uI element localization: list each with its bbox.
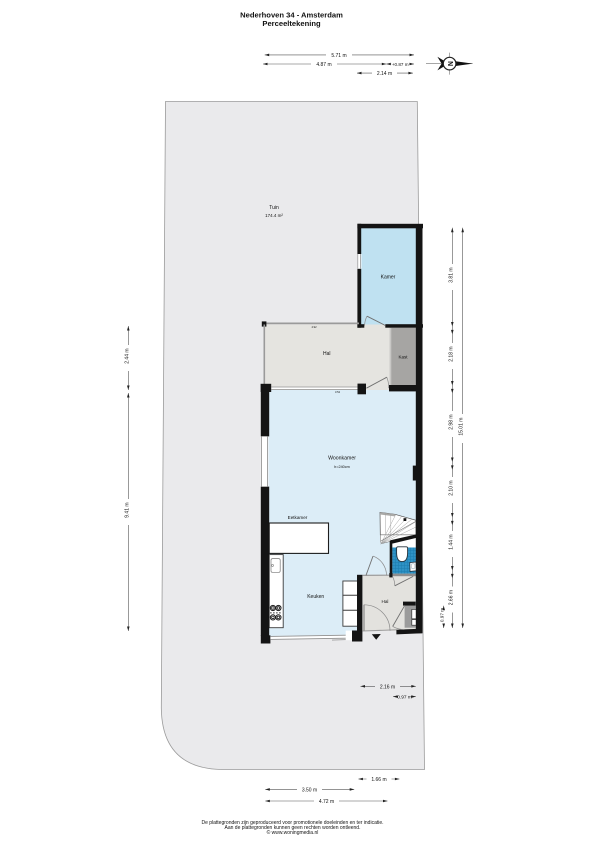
svg-text:9.41 m: 9.41 m (124, 502, 130, 517)
svg-text:Hal: Hal (323, 351, 331, 357)
svg-text:2.14 m: 2.14 m (377, 71, 392, 77)
svg-text:Keuken: Keuken (307, 594, 324, 600)
svg-text:3.50 m: 3.50 m (302, 787, 317, 793)
svg-text:174.4 m²: 174.4 m² (265, 213, 283, 218)
svg-text:3.81 m: 3.81 m (448, 267, 454, 282)
svg-text:Hal: Hal (382, 599, 389, 604)
svg-text:4.72 m: 4.72 m (319, 799, 334, 805)
svg-text:h=240cm: h=240cm (334, 465, 350, 469)
svg-text:Tuin: Tuin (269, 205, 279, 211)
svg-text:2.44 m: 2.44 m (124, 348, 130, 363)
svg-text:5.71 m: 5.71 m (331, 53, 346, 59)
svg-text:15.01 m: 15.01 m (459, 418, 465, 436)
svg-text:1.66 m: 1.66 m (371, 777, 386, 783)
svg-text:N: N (446, 61, 453, 66)
svg-text:0.97 m: 0.97 m (440, 608, 445, 622)
svg-text:Kamer: Kamer (381, 275, 396, 281)
svg-text:2.10 m: 2.10 m (448, 480, 454, 495)
svg-text:Woonkamer: Woonkamer (328, 455, 356, 461)
svg-text:1.44 m: 1.44 m (448, 534, 454, 549)
svg-text:2.18 m: 2.18 m (448, 346, 454, 361)
svg-text:2.16 m: 2.16 m (380, 684, 395, 690)
svg-text:2.98 m: 2.98 m (448, 414, 454, 429)
svg-text:2.66 m: 2.66 m (448, 590, 454, 605)
svg-text:+0.87 m: +0.87 m (392, 62, 409, 67)
svg-text:Kast: Kast (398, 355, 408, 360)
svg-text:Eetkamer: Eetkamer (288, 515, 308, 520)
svg-text:0.97 m: 0.97 m (397, 695, 412, 701)
svg-text:3.52: 3.52 (335, 390, 341, 394)
svg-text:Perceeltekening: Perceeltekening (262, 19, 321, 28)
svg-text:© www.woningmedia.nl: © www.woningmedia.nl (267, 829, 319, 836)
svg-text:4.92: 4.92 (311, 325, 317, 329)
svg-text:4.87 m: 4.87 m (316, 62, 331, 68)
